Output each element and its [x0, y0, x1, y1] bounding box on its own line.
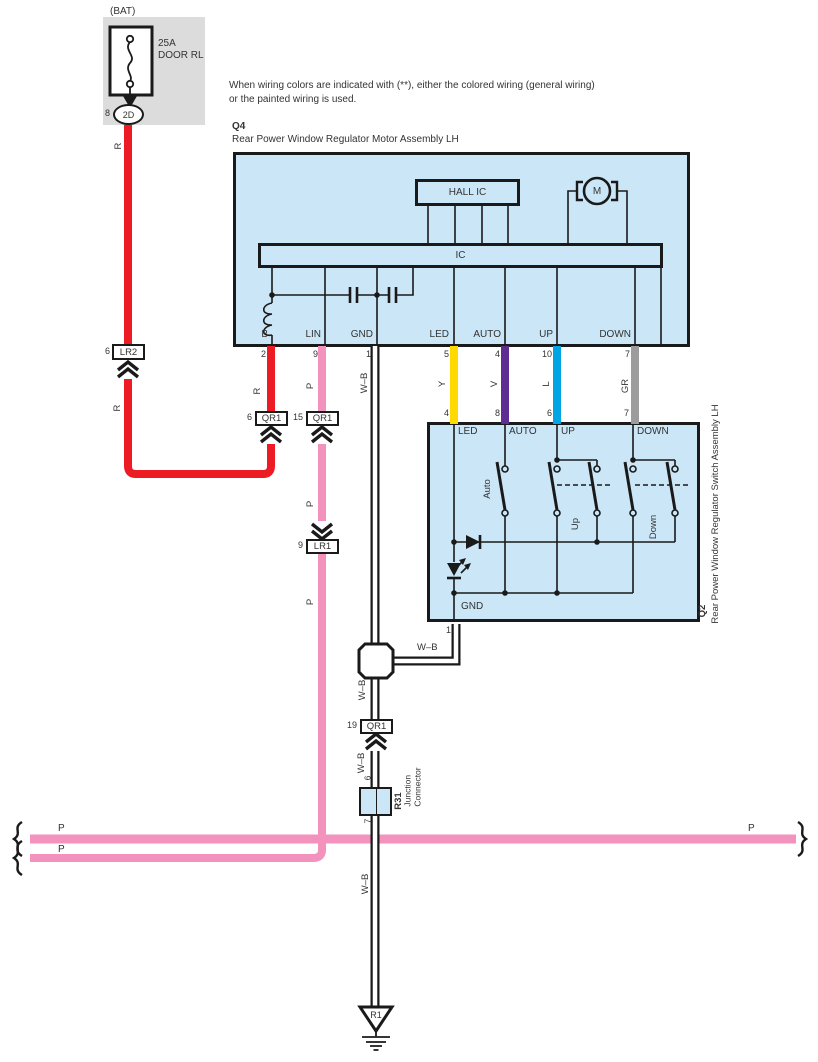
r31-junction-connector	[359, 787, 392, 816]
wire-label-l: L	[542, 381, 552, 386]
ground-id: R1	[366, 1010, 386, 1020]
qr1-gnd-connector: QR1	[360, 719, 393, 734]
bat-connector: 2D	[113, 104, 144, 125]
wire-label-wb: W–B	[360, 373, 370, 394]
bat-connector-label: 2D	[123, 110, 135, 120]
qr1-b-pin: 6	[247, 412, 252, 422]
wire-label-gr: GR	[621, 379, 631, 393]
continuation-brace-icons	[14, 822, 806, 875]
wire-label-wb: W–B	[358, 680, 368, 701]
qr1-lin-pin: 15	[293, 412, 303, 422]
q4-pin-label-lin: LIN	[305, 329, 321, 340]
wire-label-wb: W–B	[361, 874, 371, 895]
wire-label-v: V	[490, 381, 500, 387]
q2-switch-label-down: Down	[649, 515, 659, 539]
octagon-junction-icon	[359, 644, 393, 678]
qr1-gnd-label: QR1	[367, 721, 387, 732]
q4-pin-number-up: 10	[542, 349, 552, 359]
wire-label-r: R	[253, 388, 263, 395]
q4-pin-number-b: 2	[261, 349, 266, 359]
r31-desc-line2: Connector	[413, 767, 423, 806]
q2-pin-number-led: 4	[444, 408, 449, 418]
r31-pin-bottom: 7	[364, 819, 373, 824]
note-line1: When wiring colors are indicated with (*…	[229, 80, 595, 91]
ic-label: IC	[456, 250, 466, 261]
q4-pin-number-auto: 4	[495, 349, 500, 359]
hall-ic-box: HALL IC	[415, 179, 520, 206]
r31-divider	[376, 789, 378, 814]
q4-pin-label-up: UP	[539, 329, 553, 340]
wire-label-wb: W–B	[357, 753, 367, 774]
hall-ic-label: HALL IC	[449, 187, 486, 198]
wiring-diagram: HALL IC IC M (BAT) 25A DOOR RL 8 2D When…	[0, 0, 818, 1062]
wire-label-r: R	[113, 405, 123, 412]
bat-label: (BAT)	[110, 6, 135, 17]
bat-connector-pin: 8	[105, 108, 110, 118]
q4-pin-number-led: 5	[444, 349, 449, 359]
wire-label-wb-horizontal: W–B	[417, 642, 438, 653]
qr1-b-connector: QR1	[255, 411, 288, 426]
q2-id: Q2	[698, 605, 708, 618]
q2-pin-label-auto: AUTO	[509, 426, 537, 437]
q4-pin-label-down: DOWN	[599, 329, 631, 340]
motor-label: M	[590, 186, 604, 197]
wire-label-p: P	[306, 501, 316, 507]
qr1-lin-label: QR1	[313, 413, 333, 424]
wire-label-p: P	[306, 383, 316, 389]
note-line2: or the painted wiring is used.	[229, 94, 356, 105]
wire-label-p: P	[306, 599, 316, 605]
q2-pin-label-up: UP	[561, 426, 575, 437]
wire-label-p-bus2: P	[58, 844, 65, 855]
q4-pin-label-b: B	[261, 329, 268, 340]
q2-pin-number-auto: 8	[495, 408, 500, 418]
lr1-label: LR1	[314, 541, 331, 552]
q4-id: Q4	[232, 121, 245, 132]
q2-gnd-label: GND	[461, 601, 483, 612]
q2-switch-label-auto: Auto	[483, 479, 493, 499]
q2-pin-label-down: DOWN	[637, 426, 669, 437]
fuse-name: DOOR RL	[158, 50, 204, 61]
q2-switch-label-up: Up	[571, 518, 581, 530]
q4-pin-label-auto: AUTO	[473, 329, 501, 340]
ic-box: IC	[258, 243, 663, 268]
q2-name: Rear Power Window Regulator Switch Assem…	[711, 404, 721, 623]
q2-pin-number-up: 6	[547, 408, 552, 418]
q2-gnd-pin-number: 1	[446, 625, 451, 635]
q4-pin-number-down: 7	[625, 349, 630, 359]
connector-chevron-icons	[118, 362, 386, 749]
qr1-b-label: QR1	[262, 413, 282, 424]
lr1-pin: 9	[298, 540, 303, 550]
lr1-connector: LR1	[306, 539, 339, 554]
wire-label-r: R	[114, 143, 124, 150]
q4-pin-label-led: LED	[430, 329, 449, 340]
q4-pin-label-gnd: GND	[351, 329, 373, 340]
lr2-label: LR2	[120, 347, 137, 358]
r31-pin-top: 6	[364, 776, 373, 781]
q2-pin-number-down: 7	[624, 408, 629, 418]
lr2-pin: 6	[105, 346, 110, 356]
wire-label-p-bus1: P	[58, 823, 65, 834]
wire-label-p-bus1-right: P	[748, 823, 755, 834]
q4-pin-number-gnd: 1	[366, 349, 371, 359]
lr2-connector: LR2	[112, 344, 145, 360]
r31-description: Junction Connector	[404, 767, 423, 806]
qr1-gnd-pin: 19	[347, 720, 357, 730]
q4-name: Rear Power Window Regulator Motor Assemb…	[232, 134, 459, 145]
q2-switch-assembly-box	[427, 422, 700, 622]
q2-pin-label-led: LED	[458, 426, 477, 437]
fuse-rating: 25A	[158, 38, 176, 49]
wire-label-y: Y	[438, 381, 448, 387]
q4-pin-number-lin: 9	[313, 349, 318, 359]
chevron-backings	[114, 360, 390, 751]
qr1-lin-connector: QR1	[306, 411, 339, 426]
